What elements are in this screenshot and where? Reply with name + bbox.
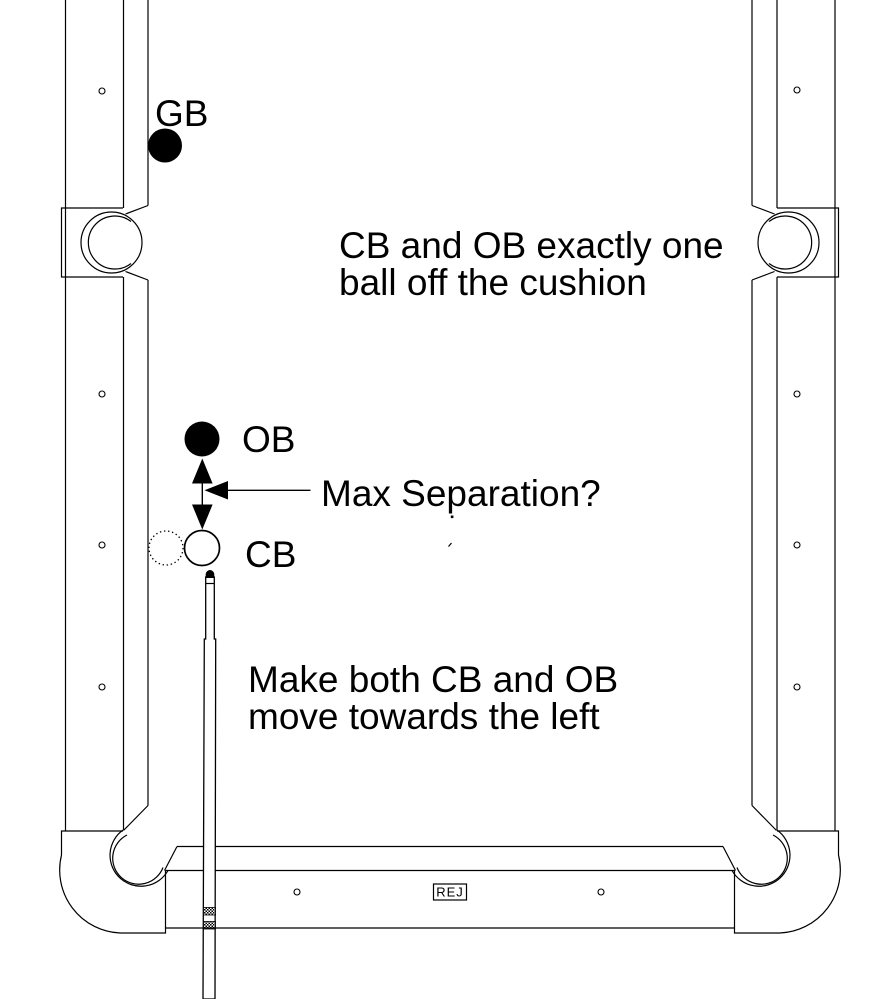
side-pocket-left-mouth-lines: [126, 206, 149, 281]
separation-label: Max Separation?: [321, 473, 601, 514]
watermark-text: REJ: [436, 885, 464, 900]
text-annotations: GB OB CB CB and OB exactly one ball off …: [155, 93, 724, 737]
object-ball: [185, 422, 220, 457]
diamond-marker: [598, 889, 604, 895]
balls: [148, 129, 220, 566]
diamond-marker: [99, 542, 105, 548]
corner-pocket-right-inner-arc: [737, 835, 787, 884]
stray-tick: [449, 543, 452, 547]
stray-dot: [451, 516, 454, 519]
action-note-line1: Make both CB and OB: [248, 659, 618, 700]
side-pocket-right: [752, 206, 839, 281]
diamond-marker: [99, 684, 105, 690]
cb-label: CB: [245, 534, 296, 575]
diamond-marker: [99, 391, 105, 397]
corner-pocket-left-inner-arc: [113, 835, 163, 884]
arrowhead-left: [205, 481, 229, 500]
cue-wrap-band: [204, 908, 216, 916]
bottom-right-mouth-lines: [723, 806, 777, 871]
diamond-marker: [99, 88, 105, 94]
bottom-left-mouth-lines: [124, 806, 178, 871]
bottom-rail: [124, 806, 777, 871]
stray-marks: [449, 516, 454, 547]
corner-pocket-right-outer-arc: [732, 830, 790, 886]
side-pocket-right-inner-arc: [769, 216, 812, 269]
left-rail: [66, 0, 149, 831]
cue-stick: [203, 570, 216, 999]
cue-tip: [206, 570, 215, 578]
diamond-marker: [794, 542, 800, 548]
corner-pocket-right: [732, 830, 840, 933]
right-rail: [752, 0, 835, 831]
diamond-marker: [794, 684, 800, 690]
cue-shaft: [203, 577, 216, 999]
diamond-marker: [794, 87, 800, 93]
cue-ball: [185, 531, 220, 566]
arrowhead-down: [192, 505, 213, 530]
action-note-line2: move towards the left: [248, 696, 600, 737]
billiards-diagram: REJ GB OB CB CB and OB exactly one ball …: [0, 0, 878, 999]
cushion-note-line1: CB and OB exactly one: [339, 225, 724, 266]
side-pocket-left-outer-arc: [81, 212, 142, 273]
side-pocket-right-outer-arc: [758, 212, 819, 273]
watermark: REJ: [434, 884, 467, 900]
corner-pocket-left-outer-arc: [110, 830, 168, 886]
ob-label: OB: [242, 419, 295, 460]
corner-pocket-left: [60, 830, 168, 933]
cushion-note-line2: ball off the cushion: [339, 262, 647, 303]
ghost-ball: [149, 531, 183, 565]
pool-table-drawing: REJ GB OB CB CB and OB exactly one ball …: [0, 0, 878, 999]
side-pocket-right-mouth-lines: [752, 206, 775, 281]
side-pocket-left: [62, 206, 149, 281]
separation-arrow: [192, 459, 311, 530]
arrowhead-up: [192, 459, 213, 484]
gb-label: GB: [155, 93, 208, 134]
diamond-marker: [794, 391, 800, 397]
diamond-marker: [294, 889, 300, 895]
side-pocket-left-inner-arc: [88, 216, 131, 269]
